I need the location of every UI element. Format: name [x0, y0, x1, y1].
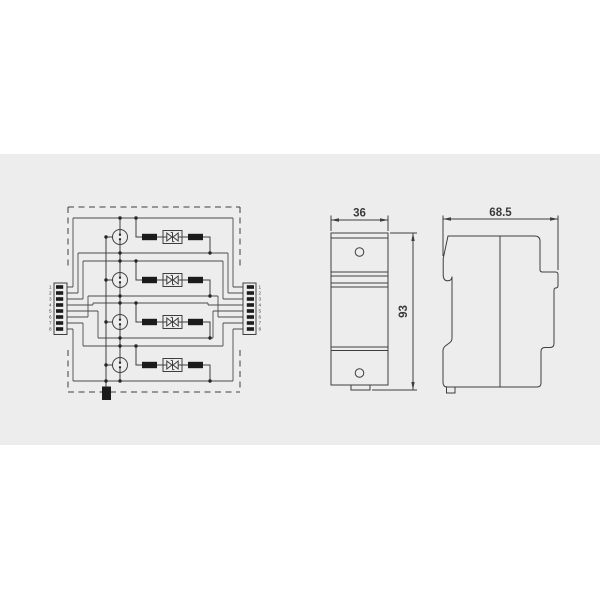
right-connector-body	[243, 283, 256, 335]
svg-text:6: 6	[259, 315, 262, 320]
svg-text:6: 6	[49, 315, 52, 320]
svg-text:1: 1	[259, 285, 262, 290]
svg-text:1: 1	[49, 285, 52, 290]
technical-drawing-page: 1 2 3 4 5 6 7 8	[0, 0, 600, 600]
bottom-tab	[351, 385, 370, 390]
height-label: 93	[398, 305, 410, 318]
svg-text:8: 8	[259, 327, 262, 332]
width-label: 36	[353, 208, 366, 220]
left-pin-numbers: 1 2 3 4 5 6 7 8	[49, 285, 52, 332]
left-connector-body	[54, 283, 67, 335]
svg-text:5: 5	[259, 309, 262, 314]
svg-text:7: 7	[259, 321, 262, 326]
gray-panel	[0, 154, 600, 445]
svg-text:7: 7	[49, 321, 52, 326]
depth-label: 68.5	[489, 207, 512, 219]
svg-text:8: 8	[49, 327, 52, 332]
drawing-canvas: 1 2 3 4 5 6 7 8	[0, 0, 600, 600]
din-rail-foot	[447, 387, 456, 393]
svg-text:2: 2	[259, 291, 262, 296]
ground-terminal	[102, 387, 111, 401]
right-pin-numbers: 1 2 3 4 5 6 7 8	[259, 285, 262, 332]
right-connector: 1 2 3 4 5 6 7 8	[243, 283, 262, 335]
svg-text:3: 3	[259, 297, 262, 302]
svg-text:4: 4	[259, 303, 262, 308]
svg-text:2: 2	[49, 291, 52, 296]
svg-text:4: 4	[49, 303, 52, 308]
svg-text:3: 3	[49, 297, 52, 302]
svg-text:5: 5	[49, 309, 52, 314]
